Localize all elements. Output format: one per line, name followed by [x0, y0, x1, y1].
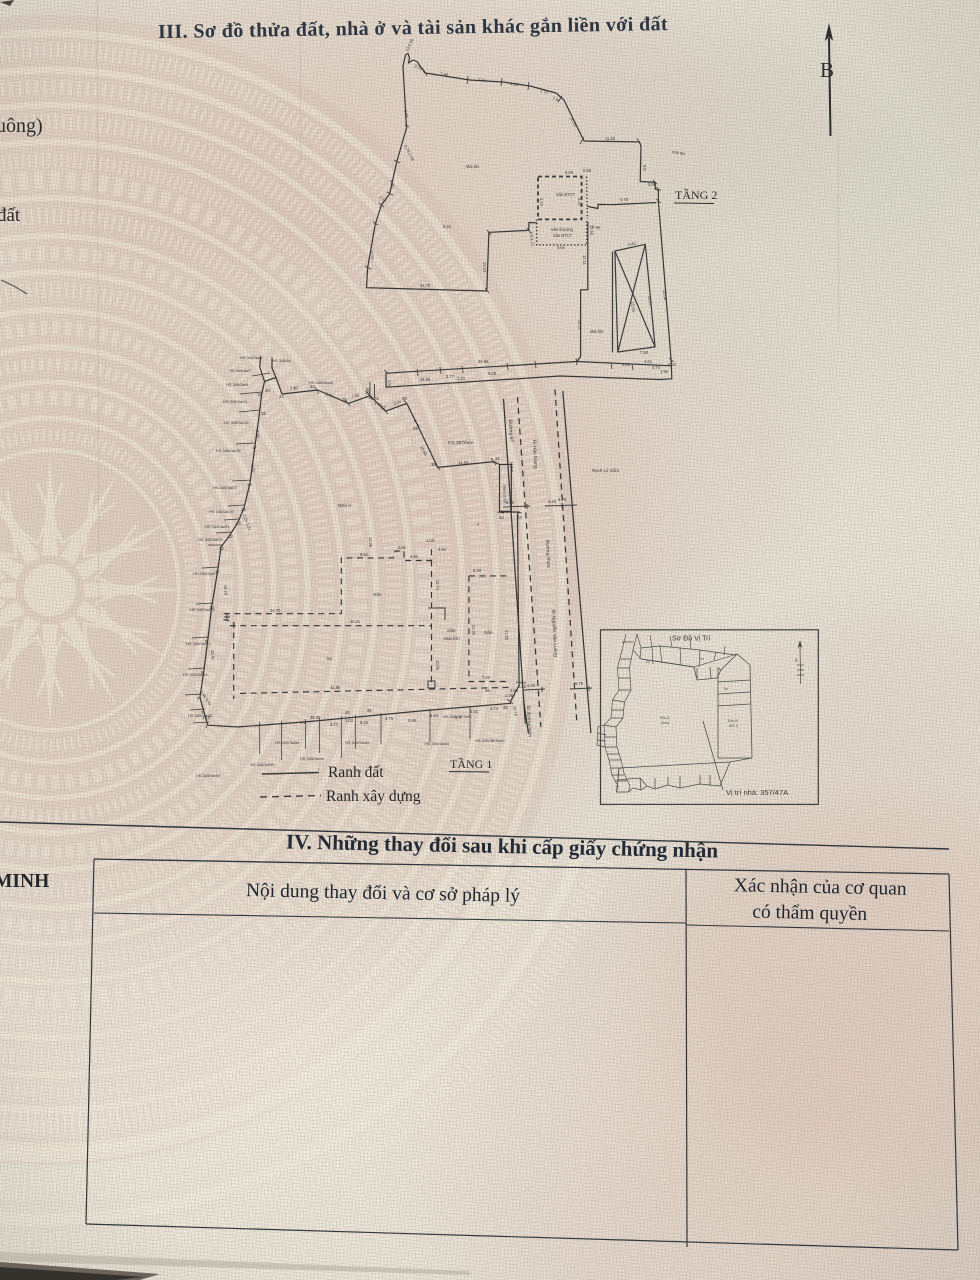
svg-text:16: 16	[247, 482, 252, 487]
svg-text:HS 345/3a/31: HS 345/3a/31	[186, 641, 211, 646]
svg-text:Đường BT: Đường BT	[507, 420, 514, 443]
svg-text:HS 345/3a/27: HS 345/3a/27	[193, 571, 218, 576]
svg-text:23: 23	[279, 394, 284, 399]
svg-text:uông): uông)	[0, 115, 43, 137]
svg-text:9.29: 9.29	[488, 371, 497, 376]
svg-text:HS 345/3a/13: HS 345/3a/13	[224, 420, 249, 425]
svg-text:11.45: 11.45	[458, 460, 469, 465]
svg-text:TẦNG 2: TẦNG 2	[675, 187, 717, 202]
svg-text:HS 345/3a/4x: HS 345/3a/4x	[425, 741, 449, 746]
svg-text:12.71: 12.71	[435, 580, 440, 591]
svg-text:39: 39	[367, 708, 372, 713]
svg-text:Sân BTCT: Sân BTCT	[553, 233, 573, 238]
svg-text:11.45: 11.45	[605, 136, 616, 141]
svg-text:Sân: Sân	[484, 630, 493, 636]
svg-text:Ao: Ao	[326, 656, 332, 662]
svg-text:4.8x: 4.8x	[371, 396, 379, 401]
svg-text:HS 345/3a/4x: HS 345/3a/4x	[345, 740, 369, 745]
svg-text:có thẩm quyền: có thẩm quyền	[752, 902, 867, 925]
svg-text:17: 17	[252, 445, 257, 450]
svg-text:Sơ Đồ Vị Trí: Sơ Đồ Vị Trí	[672, 634, 710, 643]
svg-text:4.45: 4.45	[527, 683, 536, 688]
svg-text:3x: 3x	[700, 657, 704, 661]
svg-text:1.03: 1.03	[426, 538, 435, 543]
svg-text:HS 345/4x: HS 345/4x	[272, 358, 291, 363]
svg-text:HS 345/3a/15: HS 345/3a/15	[216, 448, 241, 453]
svg-text:TẦNG 1: TẦNG 1	[450, 756, 492, 771]
svg-text:4.10: 4.10	[539, 198, 544, 207]
svg-text:4.84: 4.84	[410, 554, 419, 559]
svg-text:6.75: 6.75	[575, 681, 584, 686]
svg-text:3.7: 3.7	[455, 715, 461, 720]
svg-text:HS 345/3a/11: HS 345/3a/11	[223, 399, 248, 404]
svg-text:9.60: 9.60	[430, 713, 439, 718]
svg-text:4.45: 4.45	[548, 499, 557, 504]
svg-text:6.90: 6.90	[506, 500, 515, 505]
svg-text:B: B	[820, 58, 834, 82]
svg-text:12.11: 12.11	[582, 255, 587, 266]
svg-text:Ranh xây dựng: Ranh xây dựng	[326, 788, 421, 805]
svg-text:7.40: 7.40	[290, 385, 299, 391]
svg-text:15: 15	[241, 507, 246, 512]
svg-text:Sân BTCT: Sân BTCT	[556, 192, 576, 197]
svg-text:21.05: 21.05	[504, 630, 509, 641]
svg-text:Xác nhận của cơ quan: Xác nhận của cơ quan	[734, 875, 907, 900]
svg-text:2.90: 2.90	[505, 693, 514, 698]
svg-text:LN 4.77: LN 4.77	[529, 232, 535, 247]
svg-text:39.80: 39.80	[310, 715, 321, 720]
svg-text:HS 345/3a/17: HS 345/3a/17	[213, 485, 238, 490]
svg-text:MINH: MINH	[0, 871, 49, 892]
svg-text:Sân thượng: Sân thượng	[551, 227, 574, 232]
svg-text:HS 345/3a/33: HS 345/3a/33	[183, 672, 208, 677]
svg-text:9.62: 9.62	[360, 552, 369, 557]
svg-text:HS 345/3a/21: HS 345/3a/21	[205, 524, 230, 529]
svg-text:18: 18	[261, 411, 266, 416]
svg-text:7.90: 7.90	[640, 350, 649, 355]
svg-text:4.75: 4.75	[620, 197, 629, 202]
svg-text:30: 30	[431, 462, 436, 467]
svg-text:20: 20	[265, 388, 270, 393]
svg-text:7.0x: 7.0x	[478, 77, 486, 83]
svg-text:12.4x: 12.4x	[210, 650, 216, 660]
svg-text:84.70: 84.70	[420, 283, 431, 288]
svg-text:Nhà ở: Nhà ở	[338, 502, 351, 509]
svg-text:1.20: 1.20	[457, 376, 466, 381]
svg-text:0.52: 0.52	[668, 362, 677, 367]
svg-text:1.51: 1.51	[387, 380, 392, 389]
svg-text:4.6x: 4.6x	[557, 245, 565, 250]
svg-text:12: 12	[219, 546, 224, 551]
svg-text:21.05: 21.05	[471, 625, 476, 636]
svg-text:Vị trí nhà: 357/47A: Vị trí nhà: 357/47A	[726, 788, 788, 797]
svg-text:26: 26	[365, 390, 370, 395]
svg-text:34.99: 34.99	[420, 377, 431, 382]
svg-text:đất: đất	[0, 205, 21, 226]
svg-text:40.2x: 40.2x	[350, 619, 360, 624]
svg-text:9.00: 9.00	[565, 170, 574, 175]
svg-text:4.8x: 4.8x	[438, 547, 446, 552]
svg-text:14: 14	[236, 521, 241, 526]
svg-text:6.97: 6.97	[250, 465, 256, 474]
svg-text:HS 345/3a/4x: HS 345/3a/4x	[300, 756, 324, 761]
svg-text:3.77: 3.77	[330, 722, 339, 727]
svg-text:Khu B: Khu B	[728, 719, 738, 723]
svg-text:HS 345/3B/3nnC: HS 345/3B/3nnC	[475, 738, 505, 743]
svg-text:HS 345/3a/9: HS 345/3a/9	[226, 382, 249, 387]
svg-text:HS 345/3a/29: HS 345/3a/29	[190, 607, 215, 612]
svg-text:7.20: 7.20	[482, 675, 491, 680]
svg-text:Mái tôn: Mái tôn	[590, 329, 604, 334]
svg-text:19: 19	[257, 392, 262, 397]
svg-text:Sân: Sân	[373, 592, 382, 598]
svg-text:HS 345/3a/7: HS 345/3a/7	[229, 368, 252, 373]
svg-text:28: 28	[402, 396, 407, 401]
svg-text:8.25: 8.25	[360, 720, 369, 725]
svg-text:14.29: 14.29	[223, 585, 229, 596]
svg-text:0.90: 0.90	[583, 168, 592, 173]
svg-text:(34x): (34x)	[661, 721, 669, 725]
svg-text:12.98: 12.98	[368, 537, 373, 548]
svg-text:12.10: 12.10	[482, 262, 488, 273]
svg-text:4.1: 4.1	[300, 720, 306, 725]
svg-text:Rạch Lò Gốm: Rạch Lò Gốm	[592, 468, 619, 473]
svg-text:9.42: 9.42	[443, 224, 452, 229]
svg-text:2.08: 2.08	[648, 182, 657, 187]
svg-text:4.61: 4.61	[644, 359, 653, 364]
svg-text:6.75: 6.75	[558, 497, 567, 502]
svg-text:HS 345/3a/4x: HS 345/3a/4x	[250, 762, 274, 767]
svg-text:0.52: 0.52	[518, 684, 527, 689]
svg-text:29: 29	[413, 426, 418, 431]
svg-text:10.06: 10.06	[435, 660, 440, 671]
svg-text:3.77: 3.77	[446, 374, 455, 379]
svg-text:HS 367/nnA: HS 367/nnA	[448, 440, 475, 446]
svg-text:33: 33	[517, 515, 522, 520]
svg-text:HS 345/3a/23: HS 345/3a/23	[198, 537, 223, 542]
svg-text:1.03: 1.03	[345, 718, 354, 723]
svg-text:13: 13	[228, 534, 233, 539]
svg-text:40: 40	[345, 710, 350, 715]
svg-text:4.10: 4.10	[577, 198, 582, 207]
svg-text:6.51: 6.51	[470, 709, 479, 714]
svg-text:Sân: Sân	[447, 628, 456, 634]
svg-text:Mái tôn: Mái tôn	[444, 636, 460, 642]
svg-text:Mái tôn: Mái tôn	[466, 164, 480, 169]
svg-text:3.05: 3.05	[255, 430, 261, 439]
svg-text:4.75: 4.75	[385, 716, 394, 721]
svg-text:Khu A: Khu A	[660, 716, 670, 720]
svg-text:9.66: 9.66	[622, 362, 631, 367]
svg-text:1.96: 1.96	[660, 369, 669, 374]
svg-text:HS 345/3a/5x: HS 345/3a/5x	[196, 773, 220, 778]
svg-text:0.5x: 0.5x	[398, 545, 406, 550]
svg-text:35: 35	[503, 705, 508, 710]
svg-text:25: 25	[342, 397, 347, 402]
svg-text:✓: ✓	[476, 522, 480, 528]
svg-text:36: 36	[485, 688, 490, 693]
svg-text:4.10: 4.10	[202, 715, 211, 720]
svg-text:6.40: 6.40	[473, 568, 482, 573]
svg-text:HS 345/3a/5: HS 345/3a/5	[240, 355, 263, 360]
svg-text:32: 32	[499, 515, 504, 520]
svg-text:HS 345/3a/19: HS 345/3a/19	[209, 509, 234, 514]
svg-text:30: 30	[794, 658, 799, 662]
svg-text:18.11: 18.11	[577, 320, 583, 331]
svg-text:Ranh đất: Ranh đất	[328, 764, 384, 781]
svg-text:657.2: 657.2	[729, 724, 738, 728]
svg-text:31: 31	[495, 456, 500, 461]
svg-text:39.65: 39.65	[478, 359, 489, 364]
svg-text:HS 345/3a/4x: HS 345/3a/4x	[275, 740, 299, 745]
svg-text:Hẻm: Hẻm	[508, 462, 515, 472]
svg-text:0.88: 0.88	[408, 718, 417, 723]
svg-text:41.95: 41.95	[330, 685, 341, 690]
svg-text:4.74: 4.74	[490, 706, 499, 711]
svg-text:HS 345/4nnA: HS 345/4nnA	[309, 380, 333, 385]
svg-text:24.70: 24.70	[270, 608, 281, 613]
svg-text:5x: 5x	[724, 687, 728, 691]
svg-text:2x: 2x	[646, 660, 650, 664]
